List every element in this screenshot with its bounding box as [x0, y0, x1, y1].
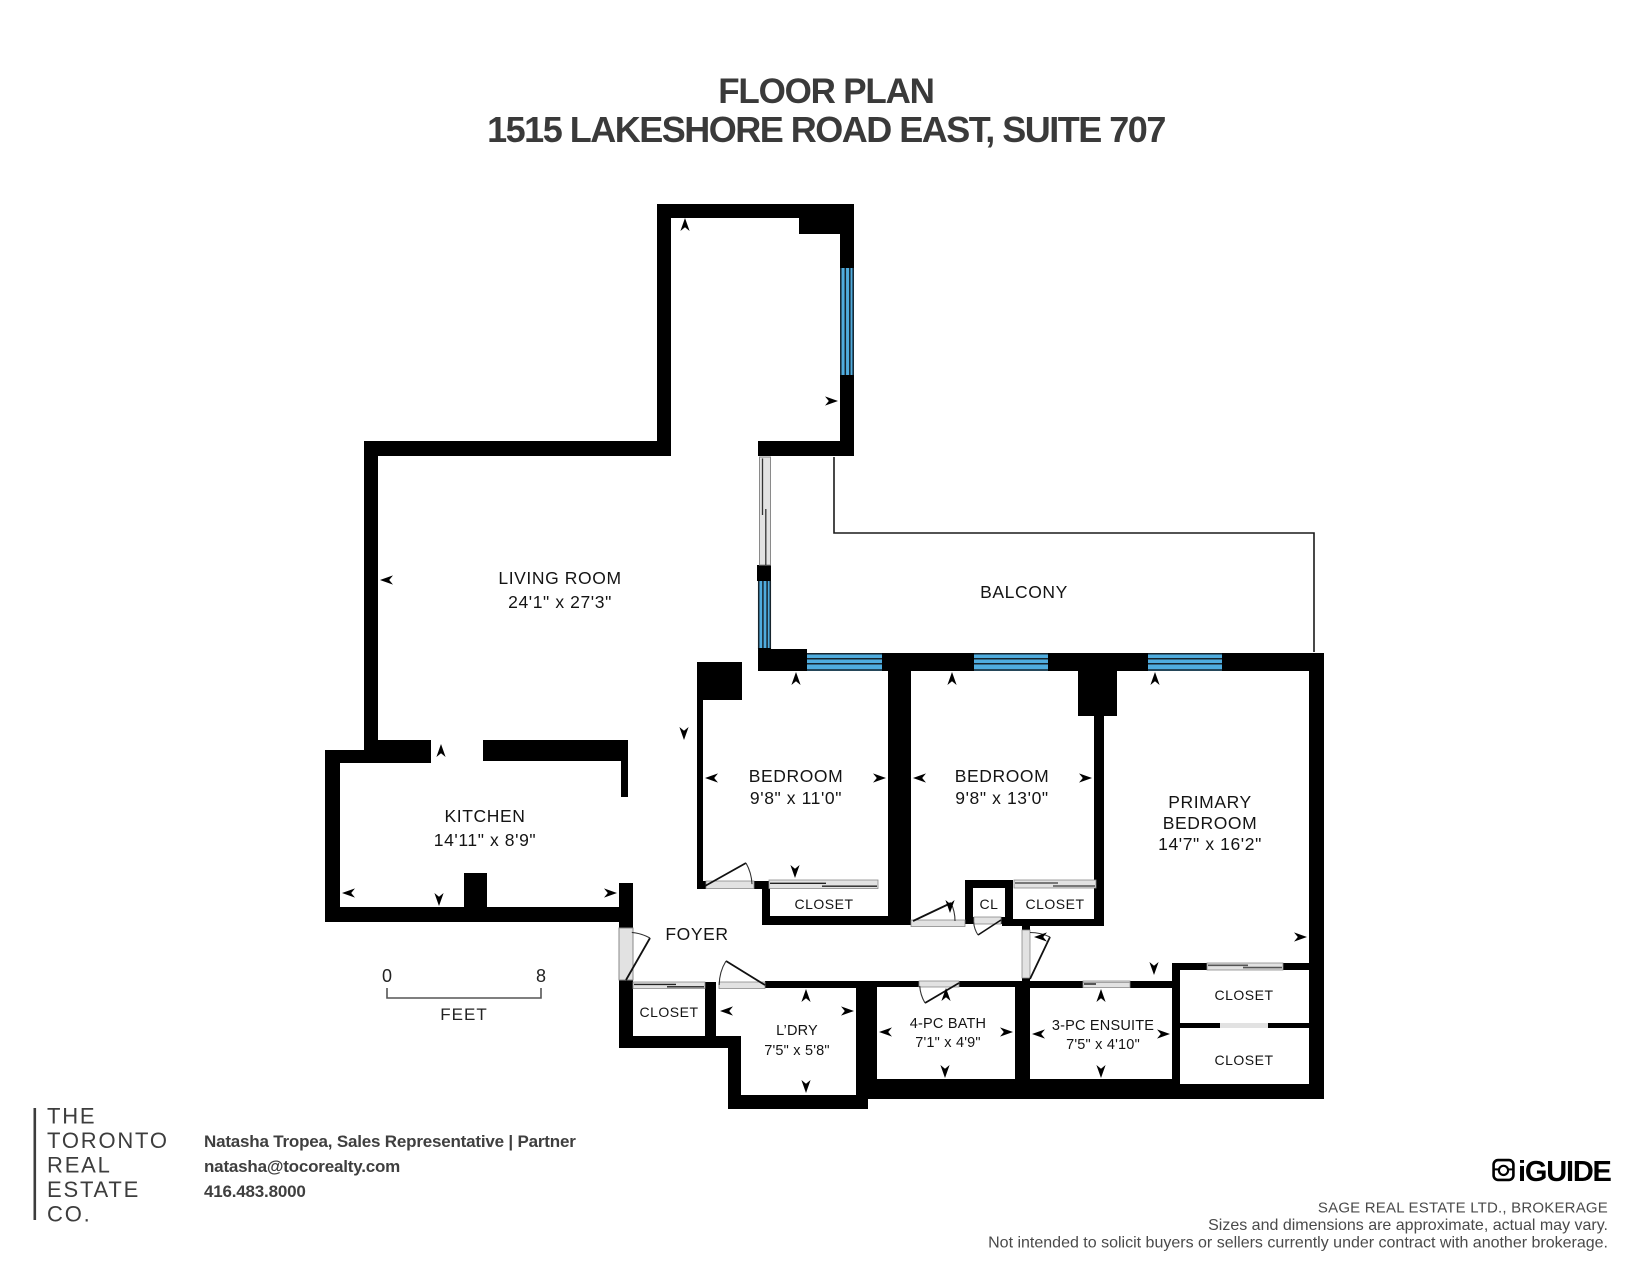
svg-text:CLOSET: CLOSET	[1214, 987, 1273, 1003]
svg-text:natasha@tocorealty.com: natasha@tocorealty.com	[204, 1157, 400, 1176]
svg-text:7'5" x 4'10": 7'5" x 4'10"	[1066, 1037, 1140, 1053]
svg-text:7'5" x 5'8": 7'5" x 5'8"	[764, 1043, 830, 1059]
svg-text:CLOSET: CLOSET	[1025, 896, 1084, 912]
svg-text:14'7" x 16'2": 14'7" x 16'2"	[1158, 834, 1262, 854]
svg-text:BEDROOM: BEDROOM	[955, 766, 1050, 786]
svg-text:FOYER: FOYER	[665, 924, 728, 944]
svg-text:SAGE REAL ESTATE LTD., BROKERA: SAGE REAL ESTATE LTD., BROKERAGE	[1318, 1200, 1608, 1217]
svg-text:BALCONY: BALCONY	[980, 582, 1068, 602]
svg-text:7'1" x 4'9": 7'1" x 4'9"	[915, 1035, 981, 1051]
svg-text:Sizes and dimensions are appro: Sizes and dimensions are approximate, ac…	[1208, 1217, 1608, 1234]
svg-text:PRIMARY: PRIMARY	[1168, 792, 1252, 812]
svg-text:Not intended to solicit buyers: Not intended to solicit buyers or seller…	[988, 1235, 1608, 1252]
svg-text:KITCHEN: KITCHEN	[444, 806, 525, 826]
svg-text:4-PC BATH: 4-PC BATH	[910, 1016, 986, 1032]
svg-text:0: 0	[382, 966, 392, 986]
svg-text:REAL: REAL	[47, 1153, 112, 1178]
svg-text:9'8" x 11'0": 9'8" x 11'0"	[750, 788, 842, 808]
svg-text:LIVING ROOM: LIVING ROOM	[498, 568, 621, 588]
svg-text:CLOSET: CLOSET	[794, 896, 853, 912]
svg-text:24'1" x 27'3": 24'1" x 27'3"	[508, 592, 612, 612]
svg-text:iGUIDE: iGUIDE	[1518, 1156, 1612, 1188]
svg-text:CO.: CO.	[47, 1202, 92, 1227]
svg-text:BEDROOM: BEDROOM	[749, 766, 844, 786]
svg-text:416.483.8000: 416.483.8000	[204, 1182, 306, 1201]
svg-text:BEDROOM: BEDROOM	[1163, 813, 1258, 833]
svg-text:14'11" x 8'9": 14'11" x 8'9"	[434, 830, 536, 850]
svg-text:9'8" x 13'0": 9'8" x 13'0"	[955, 788, 1048, 808]
svg-text:1515 LAKESHORE ROAD EAST, SUIT: 1515 LAKESHORE ROAD EAST, SUITE 707	[487, 109, 1165, 150]
svg-text:3-PC ENSUITE: 3-PC ENSUITE	[1052, 1018, 1154, 1034]
svg-text:CLOSET: CLOSET	[639, 1004, 698, 1020]
svg-text:ESTATE: ESTATE	[47, 1177, 140, 1202]
svg-text:THE: THE	[47, 1104, 96, 1129]
svg-text:CL: CL	[980, 896, 999, 912]
svg-text:FLOOR PLAN: FLOOR PLAN	[718, 72, 933, 111]
svg-text:L’DRY: L’DRY	[776, 1023, 818, 1039]
svg-text:CLOSET: CLOSET	[1214, 1052, 1273, 1068]
svg-text:Natasha Tropea, Sales Represen: Natasha Tropea, Sales Representative | P…	[204, 1132, 576, 1151]
svg-text:TORONTO: TORONTO	[47, 1128, 169, 1153]
svg-text:FEET: FEET	[440, 1005, 487, 1024]
svg-text:8: 8	[536, 966, 546, 986]
